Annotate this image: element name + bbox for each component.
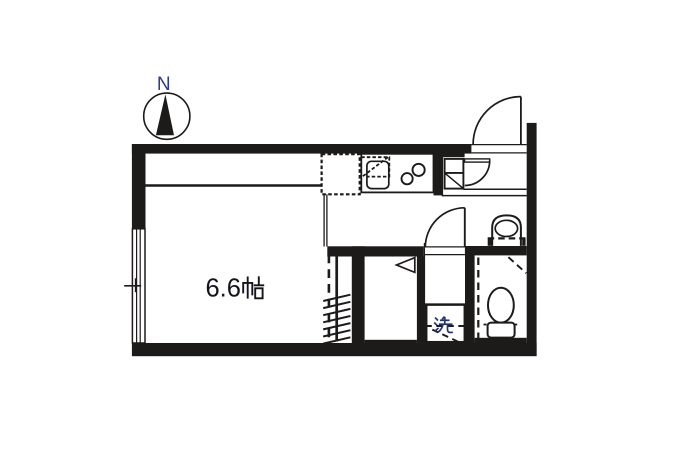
svg-text:6.6: 6.6	[206, 275, 241, 303]
svg-text:N: N	[157, 74, 171, 95]
